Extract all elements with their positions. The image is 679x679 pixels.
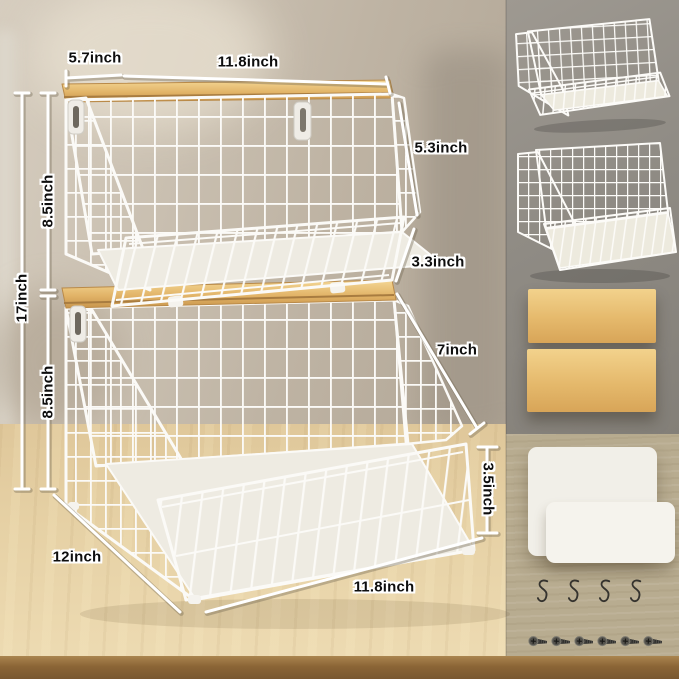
dim-label-top-width: 11.8inch [218,54,279,71]
s-hook-icon [567,578,582,607]
component-basket-upper [516,18,672,136]
s-hook-icon [598,578,613,607]
top-basket-tier [62,80,442,306]
screw-icon [643,634,664,649]
screws-row [528,634,664,649]
dim-label-lower-height: 8.5inch [40,365,57,418]
screw-icon [620,634,641,649]
dim-label-upper-front: 3.3inch [411,254,464,271]
dim-label-upper-height: 8.5inch [40,174,57,227]
screw-icon [597,634,618,649]
dim-label-lower-slope: 7inch [437,342,477,359]
dim-label-total-height: 17inch [14,274,31,323]
s-hook-icon [629,578,644,607]
dim-label-base-depth: 12inch [53,549,102,566]
product-dimension-image: 5.7inch 11.8inch 17inch 8.5inch 8.5inch … [0,0,679,679]
screw-icon [551,634,572,649]
component-basket-lower [518,143,676,283]
s-hook-icon [536,578,551,607]
dim-label-upper-slope: 5.3inch [414,140,467,157]
screw-icon [528,634,549,649]
dim-label-base-width: 11.8inch [354,579,415,596]
dim-label-lower-front: 3.5inch [480,462,497,515]
product-shadow [80,599,510,629]
s-hooks-row [536,578,656,607]
screw-icon [574,634,595,649]
dim-label-top-depth: 5.7inch [68,50,121,67]
